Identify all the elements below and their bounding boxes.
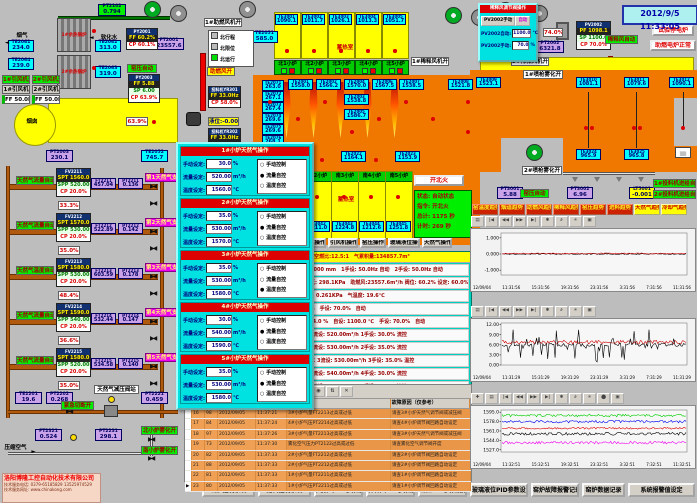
indicator-label: 1#稀释风机开 [411, 57, 449, 66]
chart-toolbar-button[interactable]: |◀ [485, 216, 498, 227]
instrument-box: PT21020.794 [98, 4, 126, 16]
indicator-label: 蓄热室 [331, 196, 361, 205]
temp-unit: ℃ [233, 187, 239, 193]
chart-toolbar-button[interactable]: ◀◀ [499, 306, 512, 317]
action-button[interactable]: 系统报警值设定 [628, 483, 695, 497]
alarm-toolbar-button[interactable]: ⇅ [326, 386, 339, 397]
alarm-row[interactable]: ▶2380 2012/09/0511:37:33 1#小炉气压PT2211过高或… [185, 482, 471, 492]
branch-valve2-icon[interactable]: ▶◀ [150, 246, 155, 252]
svg-text:-1.000: -1.000 [484, 268, 499, 274]
chart-toolbar-button[interactable]: ⌕ [569, 393, 582, 404]
mode-flow-radio[interactable]: ● 流量自控 [260, 327, 306, 338]
flow-set-label: 流量设定: [183, 174, 205, 181]
branch-flow-box: FT2213603.59 [91, 268, 116, 279]
north-port-box: 北3小炉 [328, 60, 355, 75]
branch-valve2-icon[interactable]: ▶◀ [150, 201, 155, 207]
instrument-box: PT20026321.8 [536, 41, 564, 53]
burner-gas-block: 1#小炉天然气操作 手动设定: 30.0 % 流量设定: 520.00 m³/h… [180, 146, 310, 196]
branch-pressure-box: PT22150.140 [118, 358, 143, 369]
action-button[interactable]: 窑温度趋势 [472, 204, 498, 215]
manual-set-input[interactable]: 35.0 [206, 367, 232, 377]
branch-flow-box: FT2211457.04 [91, 178, 116, 189]
reversal-legend: 北行程北限位北运行 [208, 30, 254, 67]
chart-toolbar-button[interactable]: ▣ [583, 306, 596, 317]
branch-valve2-icon[interactable]: ▶◀ [150, 336, 155, 342]
sensor-dot [268, 100, 272, 104]
temp-set-label: 温度设定: [183, 239, 205, 246]
instrument-box: PT2003230.1 [46, 150, 73, 162]
action-button[interactable]: 天然气操作 [422, 238, 452, 248]
branch-controller[interactable]: FV2215SPT 1580.0SPP 520.00CP 20.0% [56, 348, 91, 377]
sensor-dot [590, 126, 594, 130]
chart-toolbar-button[interactable]: ▶| [527, 306, 540, 317]
action-button[interactable]: 玻璃液位操作 [388, 238, 420, 248]
branch-valve-icon[interactable]: ▶◀ [150, 274, 155, 280]
instrument-box: TE2074269.6 [262, 113, 284, 124]
indicator-label: 助燃风开 [207, 67, 235, 76]
mode-temp-radio[interactable]: ○ 温度自控 [260, 233, 306, 244]
flow-set-input[interactable]: 530.00 [206, 276, 232, 286]
indicator-label: ► [29, 448, 38, 457]
branch-name-label: 第4天然气支管 [145, 308, 177, 317]
chart-toolbar-button[interactable]: ▶▶ [513, 306, 526, 317]
svg-text:1.000: 1.000 [486, 235, 499, 241]
chart-toolbar-button[interactable]: |◀ [485, 306, 498, 317]
sensor-dot [339, 49, 343, 53]
instrument-box: PT22210.459 [141, 392, 168, 404]
waste-heat-boiler-1: 1#余热锅炉 [57, 18, 91, 52]
flow-set-input[interactable]: 520.00 [206, 172, 232, 182]
branch-controller[interactable]: FV2213SPT 1580.0SPP 530.00CP 20.0% [56, 258, 91, 287]
temp-set-label: 温度设定: [183, 291, 205, 298]
mode-manual-radio[interactable]: ○ 手动控制 [260, 316, 306, 327]
svg-text:1527.0: 1527.0 [483, 447, 499, 453]
alarm-row[interactable]: 2082 2012/09/0511:37:33 2#小炉气量FT2212过高或过… [185, 451, 471, 461]
mode-flow-radio[interactable]: ● 流量自控 [260, 223, 306, 234]
sensor-dot [285, 49, 289, 53]
chart-toolbar-button[interactable]: ▶▶ [527, 393, 540, 404]
action-button[interactable]: 助燃风趋势 [526, 204, 552, 215]
fan-icon [526, 144, 543, 161]
indicator-label: 稀释风自动 [605, 35, 638, 44]
svg-text:0.000: 0.000 [486, 252, 499, 258]
chart-toolbar-button[interactable]: ✳ [583, 393, 596, 404]
fan-icon [445, 7, 462, 24]
instrument-box: TE30021011.7 [302, 14, 325, 25]
indicator-label: 蓄热室 [330, 44, 360, 53]
flow-set-label: 流量设定: [183, 226, 205, 233]
company-url: 技术服务网址: www.chinakong.com [3, 487, 100, 492]
control-mode-radios: ○ 手动控制 ● 流量自控 ○ 温度自控 [257, 367, 307, 402]
branch-valve2-icon[interactable]: ▶◀ [150, 291, 155, 297]
action-button[interactable]: 开北火 [414, 175, 464, 186]
mode-manual-radio[interactable]: ○ 手动控制 [260, 264, 306, 275]
dilution-manual-button[interactable]: PV2002手动 [481, 16, 515, 26]
indicator-label: 63.9% [126, 117, 148, 126]
flow-set-label: 流量设定: [183, 382, 205, 389]
temp-set-input[interactable]: 1590.0 [206, 341, 232, 351]
burner-gas-block: 3#小炉天然气操作 手动设定: 35.0 % 流量设定: 530.00 m³/h… [180, 250, 310, 300]
status-row: 计时: 269 秒 [417, 222, 469, 232]
temp-set-input[interactable]: 1570.0 [206, 237, 232, 247]
chart-toolbar-button[interactable]: ▶▶ [513, 216, 526, 227]
chart-toolbar-button[interactable]: ◀◀ [513, 393, 526, 404]
controller-box[interactable]: PY2001FF 60.2%CP 60.1% [126, 28, 158, 50]
branch-valve-icon[interactable]: ▶◀ [150, 184, 155, 190]
action-button[interactable]: 玻璃液位PID参数设定 [470, 483, 528, 497]
sensor-dot [366, 49, 370, 53]
chart-toolbar-button[interactable]: ✳ [569, 216, 582, 227]
instrument-box: TE2052745.7 [141, 150, 168, 162]
mode-manual-radio[interactable]: ○ 手动控制 [260, 212, 306, 223]
burner-gas-block: 5#小炉天然气操作 手动设定: 35.0 % 流量设定: 530.00 m³/h… [180, 354, 310, 404]
north-port-box: 北1小炉 [274, 60, 301, 75]
chart-toolbar-button[interactable]: ▤ [485, 393, 498, 404]
pct-unit: % [233, 265, 238, 271]
port-temperature-trend-chart[interactable]: 1595.01578.01561.01544.01527.012/09/0411… [470, 405, 696, 469]
north-atomizing-valve-icon[interactable]: ▶◀ [148, 437, 153, 443]
burner-gas-block-title: 4#小炉天然气操作 [181, 303, 309, 312]
chart-toolbar-button[interactable]: ▤ [471, 216, 484, 227]
dilution-auto-button[interactable]: 自动 [515, 16, 530, 26]
branch-auto-label: 天然气流量自动 [16, 176, 54, 185]
instrument-box: TE30011090.1 [275, 14, 298, 25]
svg-text:6.00: 6.00 [489, 342, 499, 348]
chart-toolbar-button[interactable]: ▣ [611, 393, 624, 404]
manual-set-input[interactable]: 30.0 [206, 315, 232, 325]
indicator-label: ◄ [2, 39, 12, 48]
sensor-dot [466, 100, 470, 104]
chart-toolbar-button[interactable]: ✱ [541, 216, 554, 227]
mode-temp-radio[interactable]: ○ 温度自控 [260, 337, 306, 348]
instrument-box: TE2051585.0 [251, 31, 278, 43]
temp-set-input[interactable]: 1580.0 [206, 393, 232, 403]
branch-controller[interactable]: FV2214SPT 1590.0SPP 540.00CP 20.0% [56, 303, 91, 332]
pct-unit: % [233, 369, 238, 375]
chart-toolbar-button[interactable]: ✱ [555, 393, 568, 404]
indicator-label: 紧急切断开 [61, 401, 94, 410]
instrument-box: TE30031026.1 [329, 14, 352, 25]
action-button[interactable]: 烟道趋势 [499, 204, 525, 215]
manual-set-label: 手动设定: [183, 317, 205, 324]
instrument-box: TE30441212.6 [359, 221, 384, 232]
alarm-row[interactable]: 1698 2012/09/0511:37:21 3#小炉气量FT2213过高或过… [185, 409, 471, 419]
instrument-box: TE20061567.5 [372, 79, 397, 90]
temp-unit: ℃ [233, 239, 239, 245]
temp-set-label: 温度设定: [183, 395, 205, 402]
instrument-box: TE20231153.9 [395, 151, 420, 162]
reversal-status-panel: 状态: 自动状态指令: 开北火总计: 1175 秒计时: 269 秒 [414, 190, 472, 238]
indicator-label: 1#喷枪雾化开 [523, 70, 563, 79]
instrument-box: TE20051586.7 [344, 109, 369, 120]
pressure-reducer-icon[interactable] [104, 405, 118, 417]
chart-x-labels: 12/09/0411:31:2915:31:2919:31:2923:31:29… [471, 375, 695, 381]
cooler-coil-icon: ▒▒ [675, 147, 691, 158]
branch-controller[interactable]: FV2211SPT 1560.0SPP 520.00CP 20.0% [56, 168, 91, 197]
flow-set-input[interactable]: 530.00 [206, 224, 232, 234]
chart2-toolbar: ▤|◀◀◀▶▶▶|✱⌕✳▣ [471, 306, 596, 317]
dilution-popup-title: 稀释风调节阀操作 [480, 5, 536, 13]
mode-manual-radio[interactable]: ○ 手动控制 [260, 368, 306, 379]
alarm-toolbar-button[interactable]: ✕ [340, 386, 353, 397]
temp-set-input[interactable]: 1560.0 [206, 185, 232, 195]
dilution-auto-label: PV2002自动: [481, 31, 511, 37]
branch-flow-box: FT2215534.58 [91, 358, 116, 369]
scada-furnace-screen: 1#余热锅炉 2#余热锅炉 ▒▒ ▶◀ ▶◀ ▶◀ 南1小炉南2小炉南3小炉南4… [0, 0, 697, 503]
gas-branch-row: 天然气流量自动 FV2215SPT 1580.0SPP 520.00CP 20.… [0, 348, 178, 393]
controller-box[interactable]: PY2003FF 5.88SP 6.00CP 63.9% [128, 74, 160, 103]
sensor-dot [315, 195, 319, 199]
alarm-rows: 1698 2012/09/0511:37:21 3#小炉气量FT2213过高或过… [185, 409, 471, 492]
action-button[interactable]: 稀释风趋势 [553, 204, 579, 215]
sensor-dot [320, 158, 324, 162]
chart-toolbar-button[interactable]: ◀◀ [499, 216, 512, 227]
chart-toolbar-button[interactable]: ▶| [527, 216, 540, 227]
status-row: 指令: 开北火 [417, 202, 469, 212]
south-atomizing-valve-icon[interactable]: ▶◀ [148, 456, 153, 462]
control-mode-radios: ○ 手动控制 ● 流量自控 ○ 温度自控 [257, 159, 307, 194]
instrument-box: TE20031538.8 [344, 94, 369, 105]
sensor-dot [681, 126, 685, 130]
indicator-label: 烟气 [12, 32, 32, 41]
branch-auto-label: 天然气流量自动 [16, 311, 54, 320]
instrument-box: TE2072267.1 [262, 91, 284, 102]
reducer-actuator-icon [108, 396, 115, 403]
dilution-valve-popup: 稀释风调节阀操作 PV2002手动 自动 PV2002自动: 1100.0 ℃ … [478, 3, 538, 62]
sensor-dot [393, 49, 397, 53]
chart-toolbar-button[interactable]: ✱ [541, 306, 554, 317]
indicator-label: 2#喷枪雾化开 [522, 166, 562, 175]
fan-icon [170, 5, 187, 22]
sensor-dot [350, 130, 354, 134]
indicator-label: 2#引风机 [32, 85, 60, 94]
branch-valve-position: 35.0% [58, 246, 80, 255]
nozzle-icon [638, 177, 644, 182]
indicator-label: 窑压自动 [127, 64, 157, 73]
manual-set-label: 手动设定: [183, 265, 205, 272]
mode-temp-radio[interactable]: ○ 温度自控 [260, 389, 306, 400]
mode-flow-radio[interactable]: ● 流量自控 [260, 379, 306, 390]
legend-row: 北行程 [211, 32, 251, 43]
instrument-box: TE2075269.6 [262, 124, 284, 135]
flow-unit: m³/h [233, 174, 246, 180]
mode-flow-radio[interactable]: ○ 流量自控 [260, 275, 306, 286]
alarm-row[interactable]: 1973 2012/09/0511:37:30 雾化空气压力PT2122过高或过… [185, 440, 471, 450]
mode-temp-radio[interactable]: ● 温度自控 [260, 285, 306, 296]
chart-toolbar-button[interactable]: ✳ [569, 306, 582, 317]
instrument-box: TE30111079.6 [624, 77, 649, 88]
dilution-auto-unit: ℃ [532, 31, 537, 36]
alarm-row[interactable]: 2188 2012/09/0511:37:33 2#小炉气压PT2212过高或过… [185, 461, 471, 471]
branch-valve2-icon[interactable]: ▶◀ [150, 381, 155, 387]
action-button[interactable]: 天然气趋势 [634, 204, 660, 215]
flow-unit: m³/h [233, 382, 246, 388]
action-button[interactable]: 冷却气趋势 [661, 204, 687, 215]
instrument-box: PT2231298.1 [95, 429, 122, 441]
chart-toolbar-button[interactable]: ⌕ [555, 216, 568, 227]
fan-icon [144, 1, 161, 18]
indicator-label: FF 50.0Hz [32, 95, 60, 104]
instrument-box: FT23210.524 [35, 429, 62, 441]
furnace-pressure-trend-chart[interactable]: 12.009.006.003.000.0012/09/0411:31:2915:… [470, 318, 696, 382]
action-button[interactable]: 助燃电炉正常 [650, 40, 696, 51]
controller-box[interactable]: 投料机YR301FF 33.0HzCP 58.0% [208, 86, 241, 108]
instrument-box: TE30041013.3 [356, 14, 379, 25]
glass-level-trend-chart[interactable]: 1.0000.000-1.00012/09/0411:31:5615:31:56… [470, 228, 696, 292]
flow-set-input[interactable]: 530.00 [206, 380, 232, 390]
alarm-row[interactable]: 2281 2012/09/0511:37:33 1#小炉气量FT2211过高或过… [185, 471, 471, 481]
temp-set-input[interactable]: 1580.0 [206, 289, 232, 299]
burner-gas-block-title: 2#小炉天然气操作 [181, 199, 309, 208]
instrument-box: TE20071538.5 [399, 79, 424, 90]
control-mode-radios: ○ 手动控制 ● 流量自控 ○ 温度自控 [257, 315, 307, 350]
instrument-box: TE2073267.4 [262, 102, 284, 113]
alarm-header-reason: 故障原因（仅参考） [391, 399, 470, 408]
instrument-box: TE20011558.0 [288, 79, 313, 90]
manual-set-label: 手动设定: [183, 369, 205, 376]
indicator-label: 2#引风机开 [32, 75, 60, 84]
indicator-label: 压缩空气 [2, 444, 29, 453]
chart-toolbar-button[interactable]: ▤ [471, 306, 484, 317]
mode-flow-radio[interactable]: ● 流量自控 [260, 171, 306, 182]
alarm-row[interactable]: 1897 2012/09/0511:37:26 3#小炉气量FT2213过高或过… [185, 430, 471, 440]
instrument-box: TE30101081.1 [576, 77, 601, 88]
air-damper-bar [200, 53, 206, 111]
manual-set-input[interactable]: 35.0 [206, 211, 232, 221]
burner-gas-block-title: 3#小炉天然气操作 [181, 251, 309, 260]
flow-set-label: 流量设定: [183, 278, 205, 285]
company-info: 洛阳博隆工控自动化技术有限公司 技术服务电话: 0379-65185829 13… [2, 473, 101, 503]
action-button[interactable]: 进料趋势 [607, 204, 633, 215]
action-button[interactable]: 窑炉数据记录 [582, 483, 625, 497]
chart-toolbar-button[interactable]: ⌕ [555, 306, 568, 317]
north-port-box: 北4小炉 [355, 60, 382, 75]
sensor-dot [466, 130, 470, 134]
indicator-label: 2#投料机进给自动 [653, 190, 696, 199]
sensor-dot [92, 66, 96, 70]
dilution-auto-setpoint-input[interactable]: 1100.0 [512, 29, 531, 38]
indicator-label: 1#投料机进给自动 [653, 179, 696, 188]
svg-text:1578.0: 1578.0 [483, 419, 499, 425]
branch-valve-icon[interactable]: ▶◀ [150, 319, 155, 325]
branch-flow-box: FT2214532.44 [91, 313, 116, 324]
indicator-label: 南小炉雾化开 [141, 446, 178, 455]
nozzle-icon [594, 177, 600, 182]
nozzle-icon [572, 177, 578, 182]
sprayer-manifold [563, 172, 655, 175]
chart3-toolbar: ✚▤|◀◀◀▶▶▶|✱⌕✳⬤▣ [471, 393, 624, 404]
dilution-manual-setpoint-input[interactable]: 70.0 [512, 41, 529, 50]
branch-controller[interactable]: FV2212SPT 1570.0SPP 530.00CP 20.0% [56, 213, 91, 242]
chart-toolbar-button[interactable]: |◀ [499, 393, 512, 404]
sensor-dot [584, 126, 588, 130]
branch-name-label: 第2天然气支管 [145, 218, 177, 227]
flow-set-input[interactable]: 540.00 [206, 328, 232, 338]
indicator-label: 北小炉雾化开 [141, 426, 178, 435]
indicator-label: ◄ [87, 34, 96, 43]
branch-pressure-box: PT22140.147 [118, 313, 143, 324]
manual-set-input[interactable]: 30.0 [206, 159, 232, 169]
pct-unit: % [233, 317, 238, 323]
chart-toolbar-button[interactable]: ⬤ [597, 393, 610, 404]
sensor-dot [369, 195, 373, 199]
tc-lance-2 [636, 92, 637, 148]
sensor-dot [342, 195, 346, 199]
control-mode-radios: ○ 手动控制 ● 流量自控 ○ 温度自控 [257, 211, 307, 246]
action-button[interactable]: 窑压趋势 [580, 204, 606, 215]
flow-unit: m³/h [233, 226, 246, 232]
chart-toolbar-button[interactable]: ▶| [541, 393, 554, 404]
mode-manual-radio[interactable]: ○ 手动控制 [260, 160, 306, 171]
instrument-box: TE30431224.8 [332, 221, 357, 232]
branch-valve-icon[interactable]: ▶◀ [150, 364, 155, 370]
indicator-label: 1#引风机开 [2, 75, 30, 84]
tc-lance-3 [683, 92, 684, 130]
legend-row: 北限位 [211, 43, 251, 54]
svg-text:3.00: 3.00 [489, 352, 499, 358]
mode-temp-radio[interactable]: ○ 温度自控 [260, 181, 306, 192]
action-button[interactable]: 窑炉故障报警记录 [531, 483, 579, 497]
instrument-box: TE20221164.1 [341, 151, 366, 162]
sensor-dot [374, 158, 378, 162]
indicator-label: 1#助燃风机开 [204, 18, 242, 27]
burner-gas-popup: 1#小炉天然气操作 手动设定: 30.0 % 流量设定: 520.00 m³/h… [176, 142, 314, 410]
instrument-box: TE2063319.0 [95, 66, 121, 78]
status-row: 总计: 1175 秒 [417, 212, 469, 222]
flow-unit: m³/h [233, 330, 246, 336]
indicator-label: 天然气减压阀站 [94, 385, 139, 394]
reversal-motor-icon [186, 112, 201, 126]
instrument-box: PT30026.96 [567, 187, 593, 199]
instrument-box: TE30051051.7 [383, 14, 406, 25]
instrument-box: TE3024965.9 [576, 149, 601, 160]
instrument-box: TE30451251.8 [386, 221, 411, 232]
instrument-box: TE220119.6 [15, 392, 42, 404]
company-name: 洛阳博隆工控自动化技术有限公司 [3, 474, 100, 482]
instrument-box: LT5001-0.001 [629, 187, 655, 199]
svg-text:0.00: 0.00 [489, 363, 499, 369]
sensor-dot [323, 100, 327, 104]
manual-set-input[interactable]: 35.0 [206, 263, 232, 273]
nozzle-icon [616, 177, 622, 182]
sensor-dot [312, 49, 316, 53]
chart-toolbar-button[interactable]: ▣ [583, 216, 596, 227]
sensor-dot [377, 117, 381, 121]
branch-valve-icon[interactable]: ▶◀ [150, 229, 155, 235]
south-port-label: 南3小炉 [332, 172, 358, 182]
branch-pressure-box: PT22110.136 [118, 178, 143, 189]
action-button[interactable]: 窑压操作 [360, 238, 386, 248]
flow-unit: m³/h [233, 278, 246, 284]
flue-duct [48, 98, 178, 143]
action-button[interactable]: 引风机操作 [328, 238, 358, 248]
branch-name-label: 第1天然气支管 [145, 173, 177, 182]
indicator-label: 74.0% [543, 28, 563, 37]
air-valve-icon[interactable] [70, 434, 77, 441]
flow-set-label: 流量设定: [183, 330, 205, 337]
south-port-label: 南5小炉 [386, 172, 412, 182]
branch-auto-label: 天然气流量自动 [16, 221, 54, 230]
indicator-label: 软化水 [97, 34, 121, 43]
alarm-row[interactable]: 1784 2012/09/0511:37:24 4#小炉气压PT2214过高或过… [185, 419, 471, 429]
working-end-notch [674, 98, 697, 146]
temp-set-label: 温度设定: [183, 187, 205, 194]
gas-main-pipe [8, 410, 178, 414]
chart-toolbar-button[interactable]: ✚ [471, 393, 484, 404]
control-mode-radios: ○ 手动控制 ○ 流量自控 ● 温度自控 [257, 263, 307, 298]
chart-x-labels: 12/09/0411:32:5115:32:5119:32:5123:32:51… [471, 462, 695, 468]
pct-unit: % [233, 213, 238, 219]
